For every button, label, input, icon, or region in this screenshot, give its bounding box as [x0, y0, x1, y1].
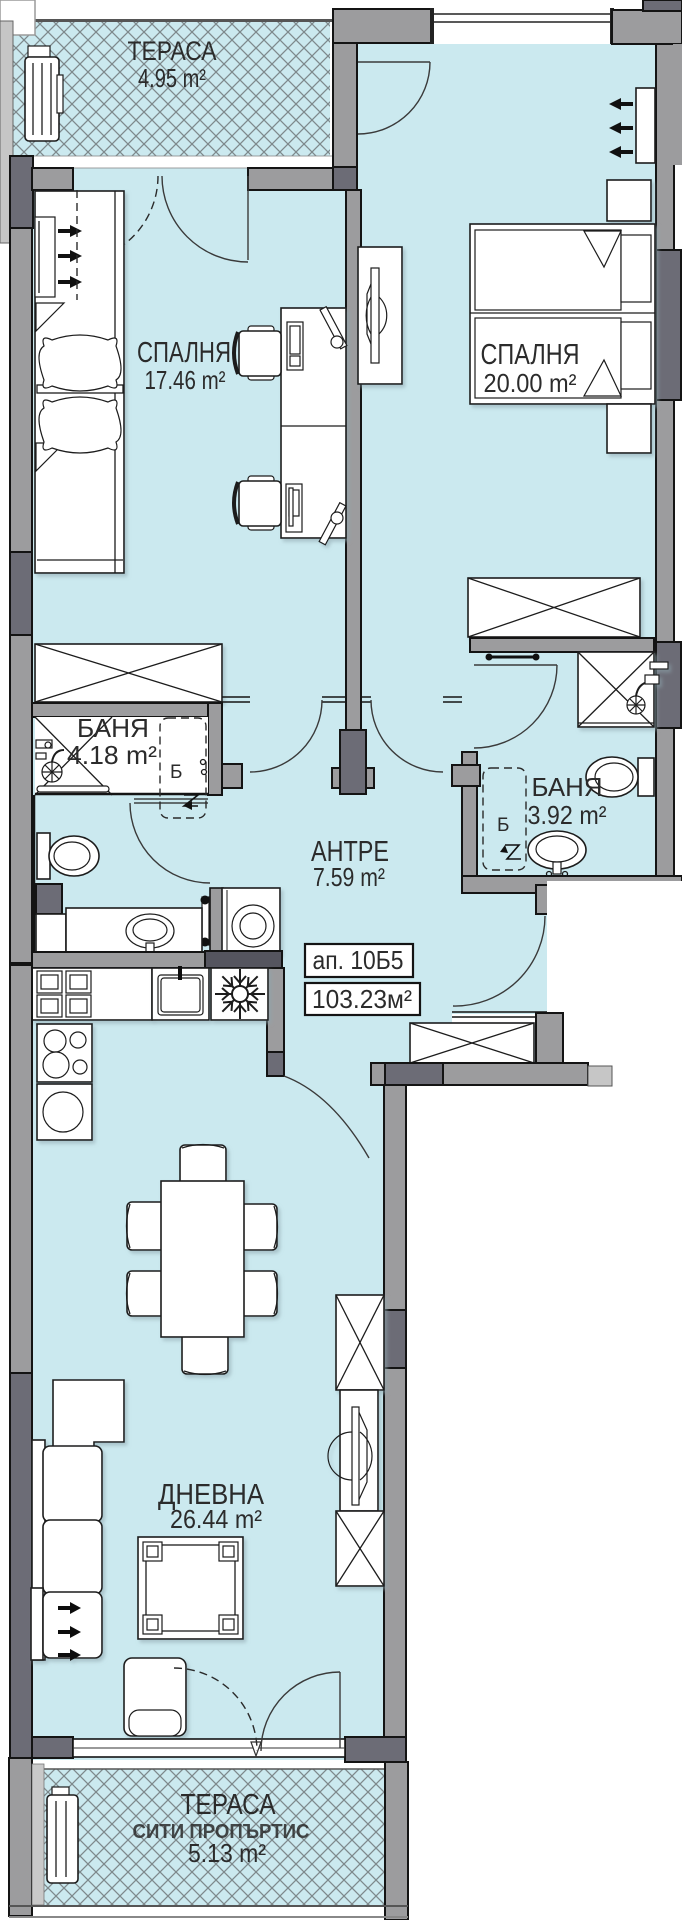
svg-text:4.95 m²: 4.95 m² [138, 63, 206, 93]
svg-text:ТЕРАСА: ТЕРАСА [181, 1789, 277, 1821]
svg-text:26.44 m²: 26.44 m² [170, 1504, 262, 1534]
svg-text:ТЕРАСА: ТЕРАСА [128, 36, 217, 66]
svg-text:БАНЯ: БАНЯ [532, 772, 603, 802]
svg-text:103.23м²: 103.23м² [312, 984, 412, 1014]
svg-text:СПАЛНЯ: СПАЛНЯ [481, 339, 580, 371]
svg-text:7.59 m²: 7.59 m² [313, 862, 385, 892]
svg-text:17.46 m²: 17.46 m² [145, 365, 226, 395]
svg-text:20.00 m²: 20.00 m² [484, 368, 577, 398]
svg-text:3.92 m²: 3.92 m² [528, 800, 607, 830]
svg-text:БАНЯ: БАНЯ [77, 713, 149, 743]
svg-text:Б: Б [170, 762, 182, 783]
svg-text:Б: Б [497, 815, 509, 836]
svg-text:4.18 m²: 4.18 m² [67, 740, 157, 770]
svg-text:ап. 10Б5: ап. 10Б5 [313, 945, 404, 975]
svg-text:СИТИ ПРОПЪРТИС: СИТИ ПРОПЪРТИС [133, 1821, 310, 1843]
